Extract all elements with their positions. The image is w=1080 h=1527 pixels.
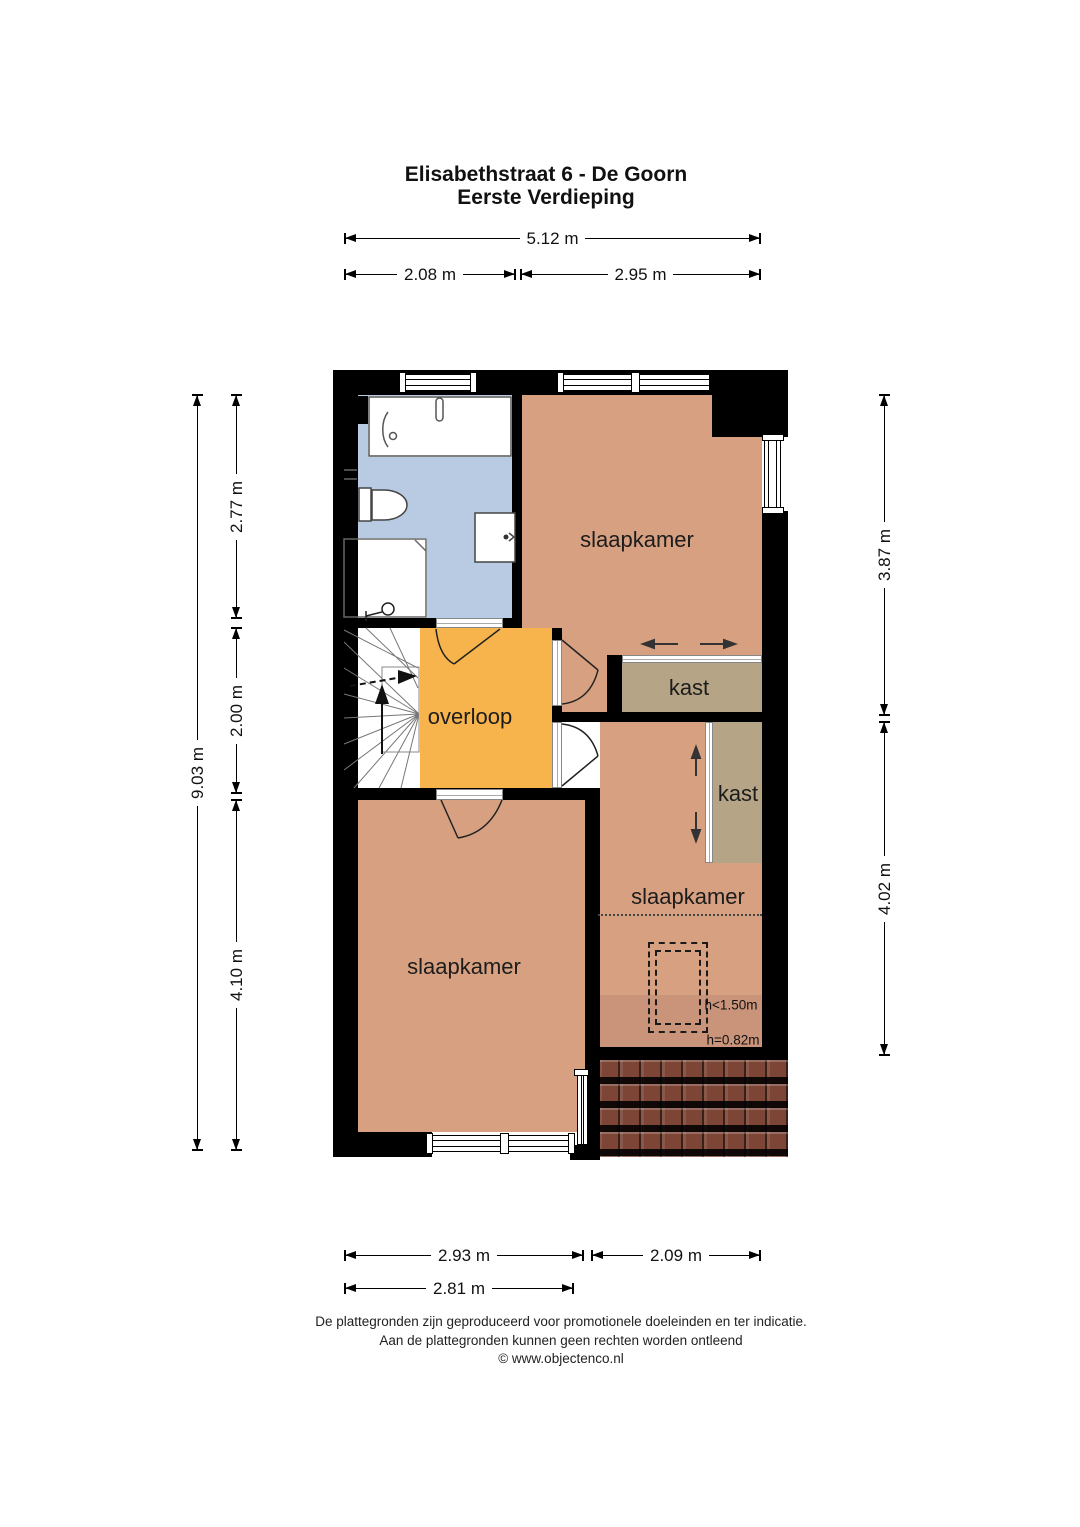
wall-corner-bottomleft xyxy=(333,1132,432,1157)
dim-top-right: 2.95 m xyxy=(521,274,760,275)
window-mullion xyxy=(631,372,640,393)
room-label-closet-top: kast xyxy=(669,675,709,701)
window-jamb xyxy=(762,434,784,441)
dim-right-seg2: 4.02 m xyxy=(884,722,885,1055)
dim-top-left: 2.08 m xyxy=(345,274,515,275)
dim-right-seg1: 3.87 m xyxy=(884,395,885,715)
door-opening-bathroom xyxy=(436,618,503,628)
dormer-dashed-outline-inner xyxy=(655,950,701,1025)
room-label-bedroom-left: slaapkamer xyxy=(407,954,521,980)
window-bathroom-top xyxy=(405,374,472,391)
room-label-landing: overloop xyxy=(428,704,512,730)
window-jamb xyxy=(426,1133,433,1154)
dim-label: 2.77 m xyxy=(227,474,247,540)
dim-label: 2.95 m xyxy=(608,265,674,285)
dim-left-seg3: 4.10 m xyxy=(236,800,237,1150)
window-bedroom-right xyxy=(764,440,781,508)
door-opening-bedroom-top xyxy=(552,640,562,706)
dim-left-seg2: 2.00 m xyxy=(236,628,237,793)
headroom-dotted-line xyxy=(598,914,762,916)
footer-line2: Aan de plattegronden kunnen geen rechten… xyxy=(161,1332,961,1351)
bathtub-zone xyxy=(368,396,512,457)
title-line1: Elisabethstraat 6 - De Goorn xyxy=(306,163,786,186)
dim-bottom-right: 2.09 m xyxy=(592,1255,760,1256)
door-opening-bedroom-right xyxy=(552,722,562,788)
wall-duct-block xyxy=(345,396,368,424)
dim-label: 2.08 m xyxy=(397,265,463,285)
sliding-door-closet-right xyxy=(705,722,713,863)
page-title: Elisabethstraat 6 - De Goorn Eerste Verd… xyxy=(306,163,786,209)
window-jamb xyxy=(399,372,406,393)
dim-label: 2.00 m xyxy=(227,678,247,744)
dim-bottom-left-inner: 2.81 m xyxy=(345,1288,573,1289)
footer-line3: © www.objectenco.nl xyxy=(161,1350,961,1369)
title-line2: Eerste Verdieping xyxy=(306,186,786,209)
bedroom-top-area xyxy=(562,628,762,655)
wall-corner-topright xyxy=(712,370,788,437)
annotation-low-headroom: h<1.50m xyxy=(705,998,758,1013)
window-side-lower xyxy=(577,1075,588,1145)
floorplan-page: Elisabethstraat 6 - De Goorn Eerste Verd… xyxy=(0,0,1080,1527)
roof-tiles-area xyxy=(597,1060,788,1157)
room-label-bedroom-right: slaapkamer xyxy=(631,884,745,910)
disclaimer-footer: De plattegronden zijn geproduceerd voor … xyxy=(161,1313,961,1369)
window-jamb xyxy=(762,507,784,514)
dim-top-total: 5.12 m xyxy=(345,238,760,239)
sliding-door-closet-top xyxy=(622,655,762,663)
wall-left xyxy=(333,370,358,1157)
dim-bottom-left: 2.93 m xyxy=(345,1255,583,1256)
wall-closet-top-left xyxy=(607,655,622,712)
window-jamb xyxy=(574,1069,589,1076)
door-opening-bedroom-left xyxy=(436,789,503,800)
dim-left-seg1: 2.77 m xyxy=(236,395,237,618)
window-jamb xyxy=(568,1133,575,1154)
dim-label: 4.02 m xyxy=(875,856,895,922)
window-jamb xyxy=(470,372,477,393)
door-swing-bedroom-right xyxy=(562,724,598,786)
dim-label: 3.87 m xyxy=(875,522,895,588)
dim-label: 2.09 m xyxy=(643,1246,709,1266)
window-mullion xyxy=(500,1133,509,1154)
wall-bathroom-bedroom xyxy=(512,395,522,628)
dim-label: 2.93 m xyxy=(431,1246,497,1266)
wall-mid-horizontal xyxy=(552,712,788,722)
window-jamb xyxy=(557,372,564,393)
staircase-area xyxy=(358,628,420,788)
dim-label: 4.10 m xyxy=(227,942,247,1008)
dim-label: 9.03 m xyxy=(188,740,208,806)
annotation-knee-wall: h=0.82m xyxy=(707,1033,760,1048)
room-label-bedroom-top: slaapkamer xyxy=(580,527,694,553)
dim-label: 2.81 m xyxy=(426,1279,492,1299)
wall-bedroom-right-bottom xyxy=(585,1047,788,1060)
dim-left-total: 9.03 m xyxy=(197,395,198,1150)
room-label-closet-right: kast xyxy=(718,781,758,807)
dim-label: 5.12 m xyxy=(520,229,586,249)
footer-line1: De plattegronden zijn geproduceerd voor … xyxy=(161,1313,961,1332)
